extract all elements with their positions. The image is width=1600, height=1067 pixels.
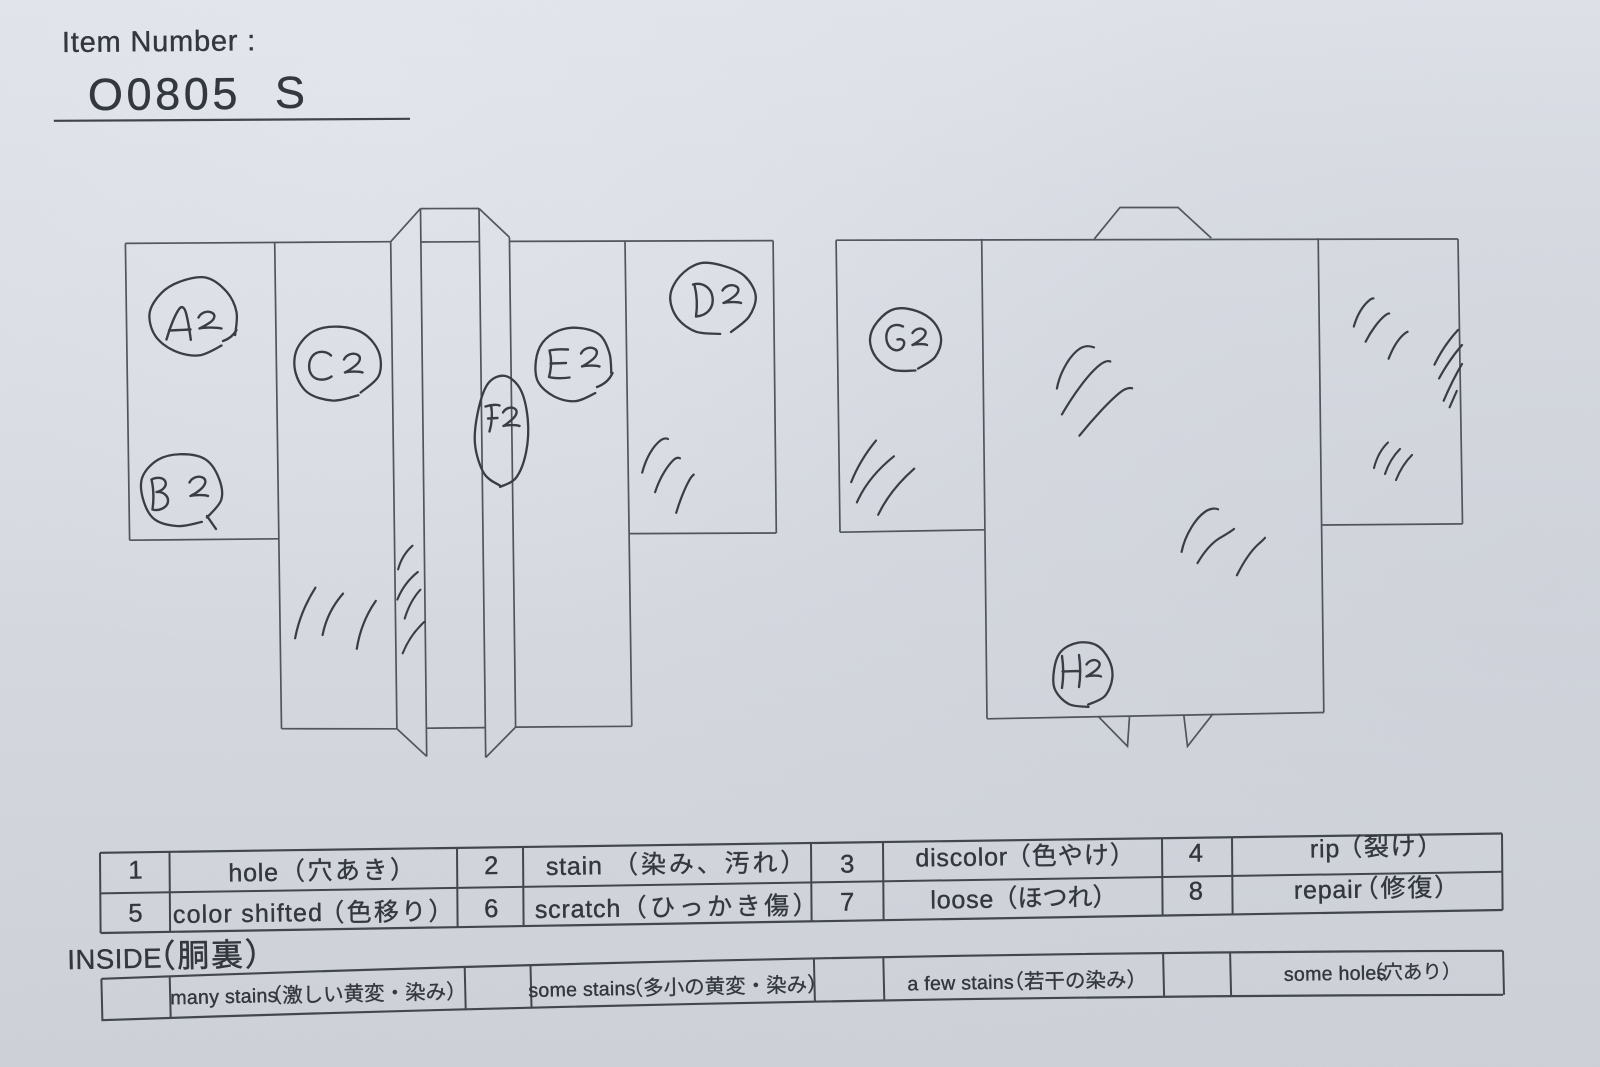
svg-text:5: 5 — [128, 899, 143, 927]
svg-text:a few stains: a few stains — [907, 972, 1014, 996]
svg-text:Item Number :: Item Number : — [62, 25, 256, 59]
svg-text:some stains: some stains — [528, 978, 636, 1002]
svg-text:many stains: many stains — [170, 985, 278, 1009]
svg-text:7: 7 — [840, 888, 855, 916]
svg-text:O0805: O0805 — [88, 68, 241, 120]
svg-text:loose: loose — [930, 886, 994, 915]
svg-text:discolor: discolor — [915, 843, 1008, 872]
svg-text:1: 1 — [128, 856, 143, 884]
svg-text:S: S — [275, 67, 305, 118]
svg-text:6: 6 — [484, 895, 499, 923]
svg-text:INSIDE: INSIDE — [67, 942, 162, 975]
svg-text:hole: hole — [228, 859, 279, 888]
svg-text:3: 3 — [840, 850, 855, 878]
svg-text:2: 2 — [484, 852, 499, 880]
svg-text:stain: stain — [546, 852, 603, 881]
svg-text:repair: repair — [1294, 876, 1363, 905]
svg-text:4: 4 — [1189, 839, 1204, 867]
svg-text:some holes: some holes — [1284, 962, 1387, 986]
svg-text:rip: rip — [1310, 835, 1341, 863]
svg-text:8: 8 — [1189, 877, 1204, 905]
svg-text:color shifted: color shifted — [173, 899, 324, 929]
svg-text:scratch: scratch — [535, 895, 622, 924]
